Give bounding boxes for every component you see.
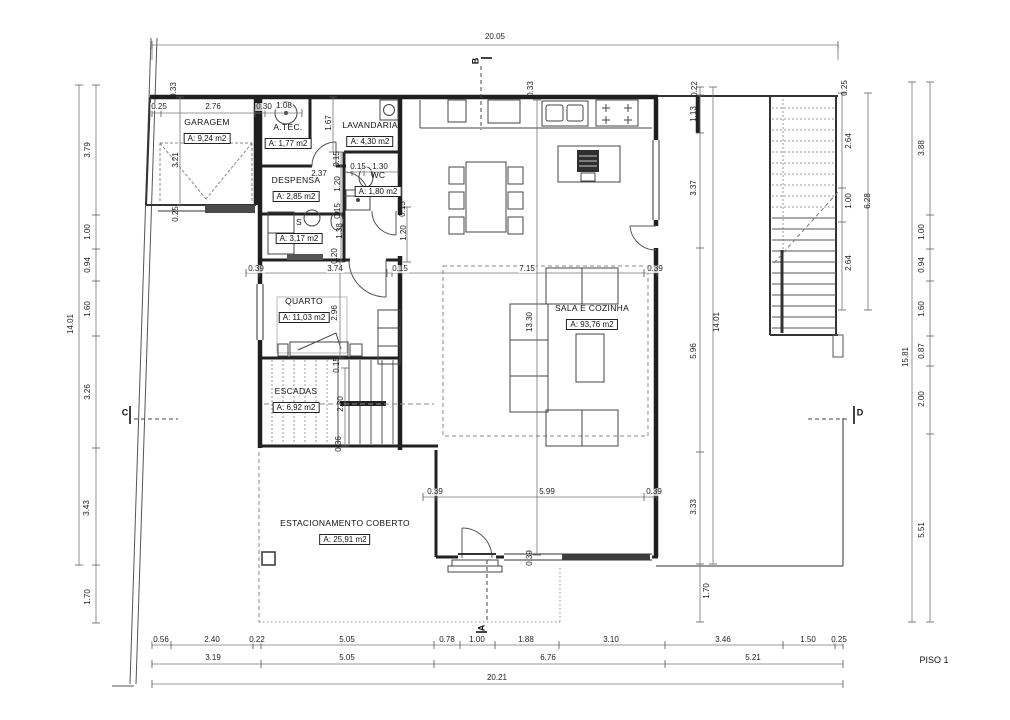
room-area: A: 6,92 m2 [273,402,320,413]
section-marker: B [472,58,481,65]
dimension-label: 5.96 [690,342,698,360]
dimension-label: 1.50 [799,636,817,644]
dimension-label: 0.15 [333,356,341,374]
labels-layer: PISO 1 20.050.252.760.301.080.333.210.25… [0,0,1010,720]
room-label: ESCADASA: 6,92 m2 [273,387,320,415]
dimension-label: 3.26 [84,383,92,401]
dimension-label: 0.87 [918,342,926,360]
room-area: A: 1,80 m2 [355,186,402,197]
dimension-label: 0.30 [255,103,273,111]
room-label: GARAGEMA: 9,24 m2 [184,118,231,146]
room-name: ESTACIONAMENTO COBERTO [280,519,410,529]
dimension-label: 0.36 [335,435,343,453]
dimension-label: 3.43 [83,499,91,517]
dimension-label: 1.00 [468,636,486,644]
dimension-label: 1.70 [84,588,92,606]
dimension-label: 6.28 [864,192,872,210]
room-name: DESPENSA [272,176,321,186]
dimension-label: 1.88 [517,636,535,644]
dimension-label: 1.13 [690,105,698,123]
dimension-label: 1.38 [336,222,344,240]
dimension-label: 1.60 [84,300,92,318]
room-area: A: 9,24 m2 [184,133,231,144]
dimension-label: 1.60 [918,300,926,318]
room-name: ESCADAS [273,387,320,397]
dimension-label: 6.76 [539,654,557,662]
dimension-label: 0.56 [152,636,170,644]
section-marker: D [857,409,864,418]
dimension-label: 1.00 [918,223,926,241]
dimension-label: 0.78 [438,636,456,644]
room-label: DESPENSAA: 2,85 m2 [272,176,321,204]
room-label: QUARTOA: 11,03 m2 [279,297,330,325]
dimension-label: 0.39 [247,265,265,273]
room-name: S [276,218,323,228]
dimension-label: 2.64 [845,254,853,272]
dimension-label: 0.94 [918,256,926,274]
dimension-label: 3.46 [714,636,732,644]
dimension-label: 0.22 [248,636,266,644]
room-area: A: 2,85 m2 [273,191,320,202]
dimension-label: 2.76 [204,103,222,111]
room-area: A: 4,30 m2 [347,136,394,147]
dimension-label: 20.05 [484,33,506,41]
dimension-label: 1.00 [84,223,92,241]
dimension-label: 5.05 [338,654,356,662]
dimension-label: 1.00 [845,192,853,210]
dimension-label: 0.25 [830,636,848,644]
room-area: A: 1,77 m2 [265,138,312,149]
dimension-label: 2.30 [337,395,345,413]
drawing-title: PISO 1 [919,655,948,665]
dimension-label: 0.15 [333,150,341,168]
dimension-label: 0.94 [84,256,92,274]
dimension-label: 0.22 [691,80,699,98]
dimension-label: 1.20 [400,224,408,242]
dimension-label: 0.20 [331,247,339,265]
dimension-label: 3.21 [172,151,180,169]
dimension-label: 1.70 [703,582,711,600]
room-area: A: 11,03 m2 [279,312,330,323]
dimension-label: 0.15 [334,202,342,220]
dimension-label: 13.30 [526,311,534,333]
dimension-label: 0.39 [645,488,663,496]
dimension-label: 3.88 [918,139,926,157]
section-marker: A [478,625,487,632]
room-label: SA: 3,17 m2 [276,218,323,246]
dimension-label: 0.25 [841,79,849,97]
dimension-label: 3.79 [84,141,92,159]
dimension-label: 0.15 [399,200,407,218]
dimension-label: 2.64 [845,132,853,150]
room-name: GARAGEM [184,118,231,128]
dimension-label: 0.39 [646,265,664,273]
dimension-label: 2.00 [918,390,926,408]
dimension-label: 1.08 [275,102,293,110]
room-name: WC [355,171,402,181]
room-area: A: 25,91 m2 [319,534,370,545]
room-area: A: 3,17 m2 [276,233,323,244]
dimension-label: 0.33 [527,80,535,98]
dimension-label: 3.37 [690,179,698,197]
dimension-label: 0.39 [526,549,534,567]
dimension-label: 5.51 [918,521,926,539]
dimension-label: 0.25 [150,103,168,111]
dimension-label: 15.81 [902,346,910,368]
dimension-label: 3.19 [204,654,222,662]
dimension-label: 20.21 [486,674,508,682]
room-label: ESTACIONAMENTO COBERTOA: 25,91 m2 [280,519,410,547]
dimension-label: 14.01 [713,311,721,333]
room-label: SALA E COZINHAA: 93,76 m2 [555,304,629,332]
section-marker: C [122,409,129,418]
room-name: SALA E COZINHA [555,304,629,314]
dimension-label: 1.67 [325,114,333,132]
dimension-label: 3.10 [602,636,620,644]
dimension-label: 0.15 [391,265,409,273]
dimension-label: 0.39 [426,488,444,496]
dimension-label: 3.33 [690,498,698,516]
dimension-label: 2.40 [203,636,221,644]
dimension-label: 3.74 [326,265,344,273]
dimension-label: 5.05 [338,636,356,644]
floorplan-sheet: PISO 1 20.050.252.760.301.080.333.210.25… [0,0,1010,720]
dimension-label: 5.21 [744,654,762,662]
room-label: A.TEC.A: 1,77 m2 [265,123,312,151]
dimension-label: 0.33 [170,81,178,99]
dimension-label: 0.15 [349,163,367,171]
room-label: WCA: 1,80 m2 [355,171,402,199]
dimension-label: 2.96 [331,304,339,322]
room-label: LAVANDARIAA: 4,30 m2 [342,121,398,149]
dimension-label: 14.01 [67,313,75,335]
dimension-label: 5.99 [538,488,556,496]
dimension-label: 7.15 [518,265,536,273]
dimension-label: 1.20 [334,175,342,193]
room-name: QUARTO [279,297,330,307]
room-name: A.TEC. [265,123,312,133]
dimension-label: 0.25 [172,205,180,223]
room-area: A: 93,76 m2 [566,319,617,330]
room-name: LAVANDARIA [342,121,398,131]
